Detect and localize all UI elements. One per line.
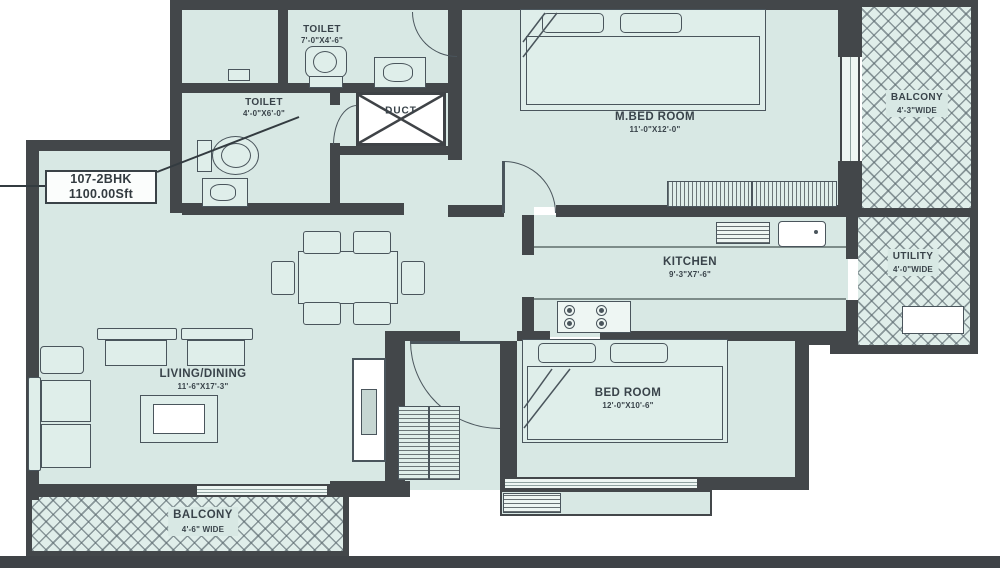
- footer-band: [0, 556, 1000, 568]
- toilet-top-wc-base: [309, 76, 343, 88]
- entry-door-leaf: [410, 341, 500, 344]
- toilet-top-name: TOILET: [301, 23, 343, 36]
- sofa-b-seat: [187, 340, 245, 366]
- balcony-right-name: BALCONY: [886, 90, 948, 105]
- mbed-bed-blanket: [526, 36, 760, 105]
- wall-mbed-balcony-b: [838, 161, 862, 208]
- mbed-door-leaf: [502, 161, 505, 213]
- unit-label-line2: 1100.00Sft: [47, 187, 155, 202]
- wall-bedroom-left: [500, 341, 517, 490]
- wall-living-bottom-a: [26, 484, 197, 497]
- unit-label: 107-2BHK 1100.00Sft: [45, 170, 157, 204]
- living-dining-name: LIVING/DINING: [160, 367, 247, 382]
- passage-niche: [228, 69, 250, 81]
- balcony-bottom-label: BALCONY 4'-6" WIDE: [168, 507, 238, 536]
- stove-burner-2: [596, 305, 607, 316]
- kitchen-sink: [778, 221, 826, 247]
- master-bedroom-dims: 11'-0"X12'-0": [615, 125, 695, 135]
- toilet-top-basin-inner: [383, 63, 413, 82]
- tv-screen: [361, 389, 377, 435]
- wall-toilet2-right-b: [330, 143, 340, 213]
- duct-label: DUCT: [385, 106, 417, 117]
- mbed-pillow-right: [620, 13, 682, 33]
- wall-kitchen-left-a: [522, 215, 534, 255]
- dining-chair-top-1: [303, 231, 341, 254]
- wall-duct-bottom: [340, 146, 460, 155]
- utility-name: UTILITY: [888, 249, 939, 264]
- side-table: [40, 346, 84, 374]
- stove-burner-4: [596, 318, 607, 329]
- master-bedroom-label: M.BED ROOM 11'-0"X12'-0": [615, 110, 695, 135]
- kitchen-dims: 9'-3"X7'-6": [663, 270, 717, 280]
- toilet-mid-dims: 4'-0"X6'-0": [243, 109, 285, 119]
- balcony-bottom-dims: 4'-6" WIDE: [168, 524, 238, 536]
- wall-toilets-left: [170, 0, 182, 213]
- wall-utility-bottom: [830, 345, 978, 354]
- kitchen-name: KITCHEN: [663, 255, 717, 270]
- wall-balcony-bottom-right: [343, 489, 349, 558]
- wall-balcony-right: [971, 0, 978, 212]
- stove-burner-3: [564, 318, 575, 329]
- living-dining-dims: 11'-6"X17'-3": [160, 382, 247, 392]
- wall-living-topleft: [26, 140, 182, 151]
- sofa-b-back: [181, 328, 253, 340]
- toilet-mid-wc-bowl-inner: [221, 143, 251, 168]
- wall-balcony-bottom-left: [26, 489, 32, 555]
- dining-chair-left: [271, 261, 295, 295]
- sofa-left-back: [28, 377, 41, 471]
- sofa-left-seat-1: [41, 380, 91, 422]
- dining-chair-bottom-1: [303, 302, 341, 325]
- living-balcony-window: [197, 484, 327, 497]
- washing-machine: [902, 306, 964, 334]
- dining-chair-top-2: [353, 231, 391, 254]
- floor-corridor-upper: [340, 150, 410, 205]
- toilet-top-wc-bowl: [313, 51, 337, 73]
- kitchen-sink-tap: [814, 230, 818, 234]
- dining-chair-bottom-2: [353, 302, 391, 325]
- bedroom-window: [505, 477, 697, 490]
- floor-plan: 107-2BHK 1100.00Sft DUCT TOILET 7'-0"X4'…: [0, 0, 1000, 568]
- kitchen-counter-bottom-edge: [534, 298, 846, 300]
- toilet-mid-label: TOILET 4'-0"X6'-0": [243, 96, 285, 119]
- bedroom-sill-steps: [503, 493, 561, 513]
- duct-shaft: [356, 92, 446, 146]
- dining-table: [298, 251, 398, 304]
- mbed-pillow-left: [542, 13, 604, 33]
- utility-label: UTILITY 4'-0"WIDE: [888, 249, 939, 276]
- toilet-mid-wc-tank: [197, 140, 212, 172]
- wall-bedroom-bottom: [697, 477, 809, 490]
- coffee-table-inner: [153, 404, 205, 434]
- wall-utility-left-a: [846, 217, 858, 259]
- wall-kitchen-bedroom-corner: [795, 331, 855, 345]
- dining-chair-right: [401, 261, 425, 295]
- bedroom-pillow-right: [610, 343, 668, 363]
- toilet-mid-basin-inner: [210, 184, 236, 201]
- kitchen-dish-rack: [716, 222, 770, 244]
- living-dining-label: LIVING/DINING 11'-6"X17'-3": [160, 367, 247, 392]
- toilet-mid-name: TOILET: [243, 96, 285, 109]
- stove-burner-1: [564, 305, 575, 316]
- wall-passage-toilet: [278, 10, 288, 85]
- wall-balcony-utility: [838, 208, 978, 217]
- bedroom-pillow-left: [538, 343, 596, 363]
- shoe-cabinet-divider: [428, 406, 430, 480]
- balcony-right-label: BALCONY 4'-3"WIDE: [886, 90, 948, 117]
- bedroom-dims: 12'-0"X10'-6": [595, 401, 661, 411]
- mbed-balcony-window: [840, 57, 860, 161]
- master-bedroom-name: M.BED ROOM: [615, 110, 695, 125]
- toilet-top-label: TOILET 7'-0"X4'-6": [301, 23, 343, 46]
- bedroom-label: BED ROOM 12'-0"X10'-6": [595, 386, 661, 411]
- kitchen-label: KITCHEN 9'-3"X7'-6": [663, 255, 717, 280]
- wall-mbed-balcony-a: [838, 10, 862, 57]
- sofa-left-seat-2: [41, 424, 91, 468]
- mbed-wardrobe-divider: [751, 181, 753, 207]
- sofa-a-back: [97, 328, 177, 340]
- sofa-a-seat: [105, 340, 167, 366]
- toilet-top-dims: 7'-0"X4'-6": [301, 36, 343, 46]
- unit-label-line1: 107-2BHK: [47, 172, 155, 187]
- wall-mbed-bottom-a: [448, 205, 504, 217]
- wall-bedroom-right: [795, 331, 809, 490]
- wall-utility-right: [970, 217, 978, 352]
- bedroom-name: BED ROOM: [595, 386, 661, 401]
- balcony-bottom-name: BALCONY: [168, 507, 238, 524]
- utility-dims: 4'-0"WIDE: [888, 264, 939, 276]
- wall-balcony-top: [862, 0, 976, 7]
- balcony-right-dims: 4'-3"WIDE: [886, 105, 948, 117]
